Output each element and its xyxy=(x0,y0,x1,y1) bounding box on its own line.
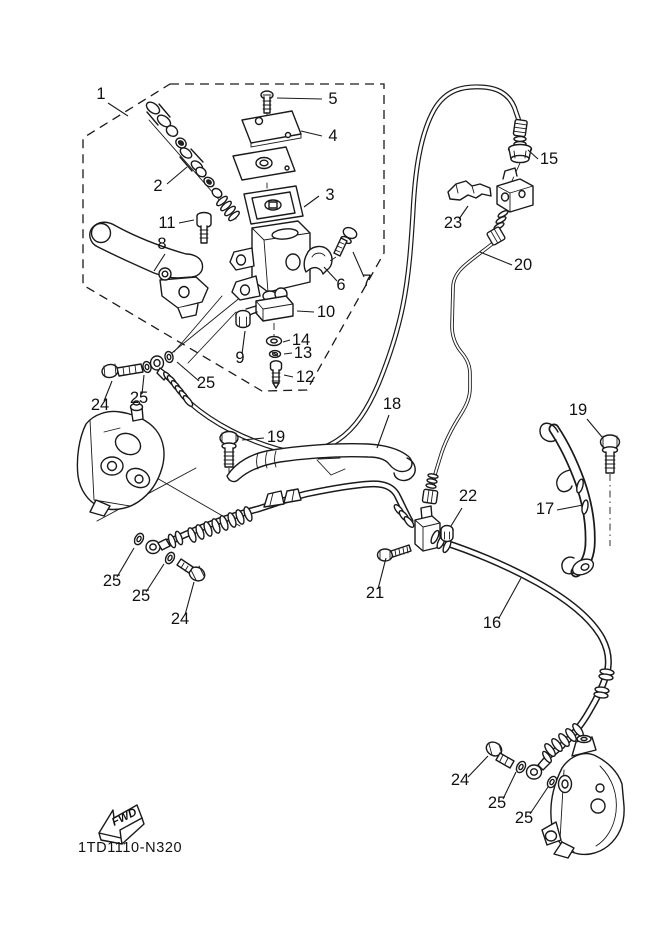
callout-leader-22 xyxy=(451,508,462,526)
callout-9: 9 xyxy=(235,349,244,367)
callout-25-left-1: 25 xyxy=(103,572,121,590)
callout-25-right-1: 25 xyxy=(488,794,506,812)
callout-leader-14 xyxy=(283,340,290,342)
callout-11: 11 xyxy=(158,214,175,232)
callout-leader-1 xyxy=(108,103,128,116)
callout-leader-25-master-2 xyxy=(177,362,199,381)
brake-lever xyxy=(90,222,208,318)
hose-fitting-15 xyxy=(509,119,532,162)
callout-21: 21 xyxy=(366,584,384,602)
callout-6: 6 xyxy=(336,276,345,294)
union-nut xyxy=(441,526,453,542)
callout-14: 14 xyxy=(292,331,310,349)
left-caliper xyxy=(77,401,164,516)
callout-4: 4 xyxy=(328,127,337,145)
callout-leader-6 xyxy=(324,267,337,281)
exploded-parts-diagram: FWD 1TD1110-N320 12345678910111213141516… xyxy=(0,0,661,935)
hose-eye-left xyxy=(146,530,184,553)
lever-pivot-bolt xyxy=(197,213,211,244)
callout-18: 18 xyxy=(383,395,401,413)
callout-leader-24-right xyxy=(468,756,488,777)
guide-bolt-left xyxy=(220,432,238,468)
callout-25-master-1: 25 xyxy=(130,389,148,407)
union-bolt-left xyxy=(177,559,207,583)
callout-leader-12 xyxy=(284,375,293,377)
drawing-code: 1TD1110-N320 xyxy=(78,840,182,856)
callout-23: 23 xyxy=(444,214,462,232)
brake-pipe xyxy=(422,209,509,504)
right-caliper-hose xyxy=(443,542,614,758)
callout-leader-10 xyxy=(297,311,314,312)
callout-leader-16 xyxy=(499,578,521,618)
callout-24-master: 24 xyxy=(91,396,109,414)
hose-stay xyxy=(448,181,491,200)
union-bolt-master xyxy=(101,363,143,379)
union-bolt xyxy=(378,545,412,561)
guide-bolt-right xyxy=(601,435,620,473)
callout-24-right: 24 xyxy=(451,771,469,789)
callout-20: 20 xyxy=(514,256,532,274)
callout-25-master-2: 25 xyxy=(197,374,215,392)
callout-15: 15 xyxy=(540,150,558,168)
callout-7: 7 xyxy=(362,272,371,290)
callout-3: 3 xyxy=(325,186,334,204)
callout-8: 8 xyxy=(157,235,166,253)
switch-washer xyxy=(267,337,282,346)
union-bolt-right xyxy=(484,739,514,768)
callout-24-left: 24 xyxy=(171,610,189,628)
reservoir-diaphragm xyxy=(244,186,303,224)
t-joint-union xyxy=(378,503,454,561)
callout-leader-20 xyxy=(480,252,512,265)
brake-switch xyxy=(246,296,293,321)
callout-22: 22 xyxy=(459,487,477,505)
pipe-flare-nut-lower xyxy=(422,473,438,504)
callout-leader-4 xyxy=(301,131,322,136)
callout-leader-2 xyxy=(167,167,187,184)
piston-kit xyxy=(144,100,240,222)
callout-10: 10 xyxy=(317,303,335,321)
hose-union-fitting xyxy=(264,489,301,507)
hose-joint-bracket xyxy=(448,168,533,212)
hose-spring-master xyxy=(166,374,194,407)
callout-5: 5 xyxy=(328,90,337,108)
callout-leader-18 xyxy=(377,415,389,448)
flange-nut-9 xyxy=(236,311,250,328)
handlebar-clamp xyxy=(304,247,332,274)
pipe-flare-nut-upper xyxy=(486,209,508,245)
piston-spring xyxy=(215,195,240,222)
cylinder-body xyxy=(230,221,310,301)
callout-17: 17 xyxy=(536,500,554,518)
callout-2: 2 xyxy=(153,177,162,195)
hose-eye-right xyxy=(527,750,553,779)
reservoir-cap xyxy=(242,111,301,147)
left-hose-spring-guard xyxy=(186,506,253,543)
callout-12: 12 xyxy=(296,368,314,386)
callout-1: 1 xyxy=(96,85,105,103)
callout-19-left: 19 xyxy=(267,428,285,446)
callout-25-left-2: 25 xyxy=(132,587,150,605)
callout-19-right: 19 xyxy=(569,401,587,419)
callout-leader-19-right xyxy=(587,419,602,437)
fwd-arrow: FWD xyxy=(99,805,144,844)
callout-leader-3 xyxy=(304,196,319,207)
diaphragm-holder xyxy=(233,147,295,188)
parts-diagram-page: FWD 1TD1110-N320 12345678910111213141516… xyxy=(0,0,661,935)
callout-16: 16 xyxy=(483,614,501,632)
switch-screw xyxy=(271,361,282,388)
callout-leader-17 xyxy=(557,505,583,510)
hose-guide-18 xyxy=(227,444,415,482)
lock-washer xyxy=(270,351,281,358)
callout-25-right-2: 25 xyxy=(515,809,533,827)
callout-leader-5 xyxy=(277,98,322,99)
callout-leader-13 xyxy=(284,353,292,354)
callout-leader-11 xyxy=(179,220,194,223)
